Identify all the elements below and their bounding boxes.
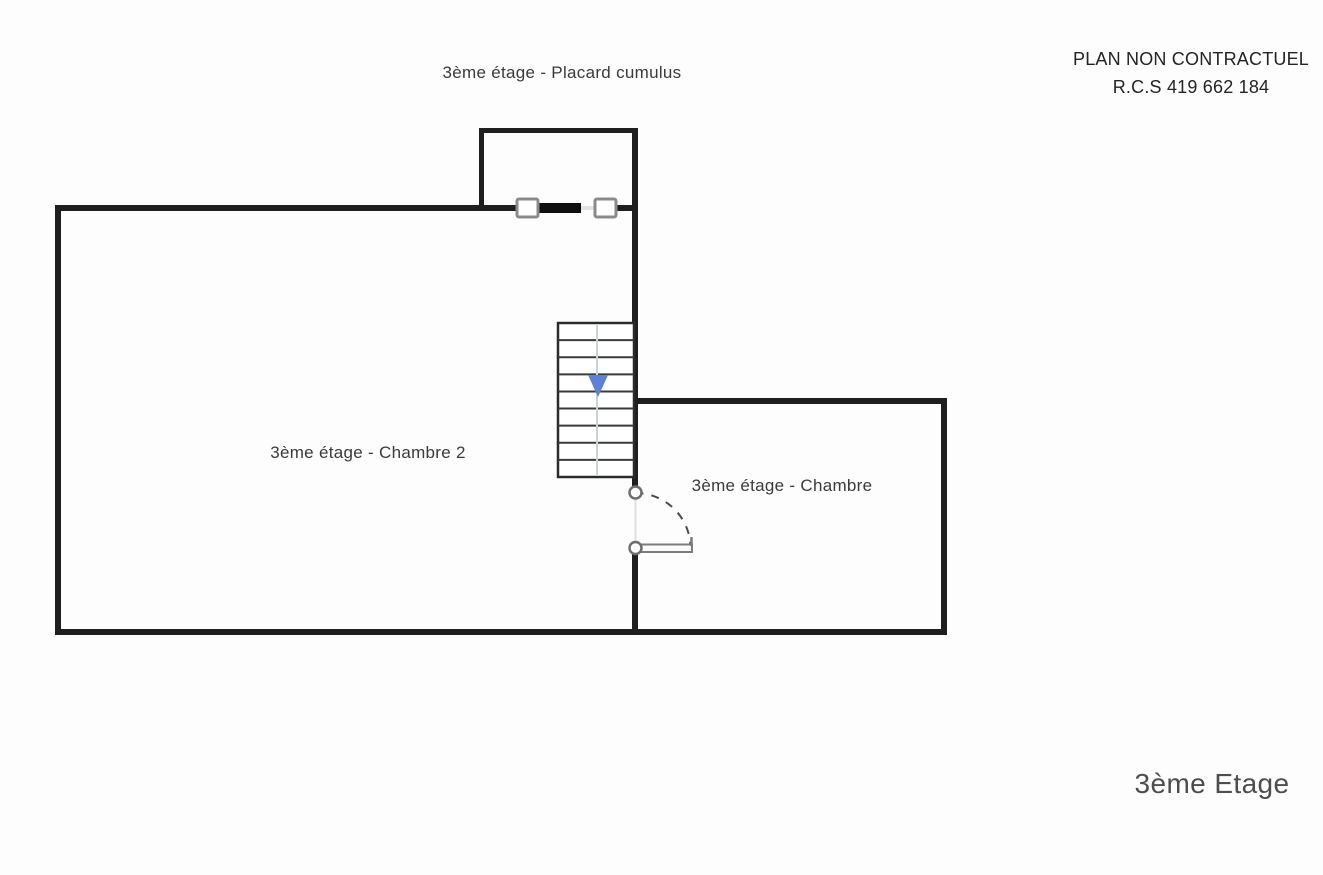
disclaimer-block: PLAN NON CONTRACTUEL R.C.S 419 662 184 — [1041, 45, 1323, 101]
sliding-door-leaf — [536, 203, 581, 213]
wall-spine-lower — [632, 552, 638, 632]
door-hinge-point — [630, 542, 642, 554]
plan-title: 3ème étage - Placard cumulus — [412, 63, 712, 83]
staircase — [558, 323, 634, 477]
room-label-chambre-2: 3ème étage - Chambre 2 — [218, 443, 518, 463]
floor-plan-drawing — [0, 0, 1323, 875]
sliding-door — [517, 199, 616, 217]
swing-door — [630, 487, 693, 555]
wall-chambre-right — [941, 398, 947, 635]
sliding-door-jamb-left — [517, 199, 538, 217]
sliding-door-jamb-right — [595, 199, 616, 217]
floor-plan-page: 3ème étage - Placard cumulus PLAN NON CO… — [0, 0, 1323, 875]
wall-bottom — [55, 629, 947, 635]
floor-label: 3ème Etage — [1082, 768, 1323, 800]
wall-closet-top — [479, 128, 638, 133]
disclaimer-line-1: PLAN NON CONTRACTUEL — [1041, 45, 1323, 73]
door-leaf — [638, 545, 692, 553]
room-label-chambre: 3ème étage - Chambre — [632, 476, 932, 496]
disclaimer-line-2: R.C.S 419 662 184 — [1041, 73, 1323, 101]
door-swing-arc — [636, 493, 691, 548]
wall-main-top-left — [55, 205, 519, 211]
walls — [55, 128, 947, 635]
wall-main-left — [55, 205, 61, 635]
wall-chambre-top — [632, 398, 947, 404]
wall-closet-left — [479, 128, 484, 211]
